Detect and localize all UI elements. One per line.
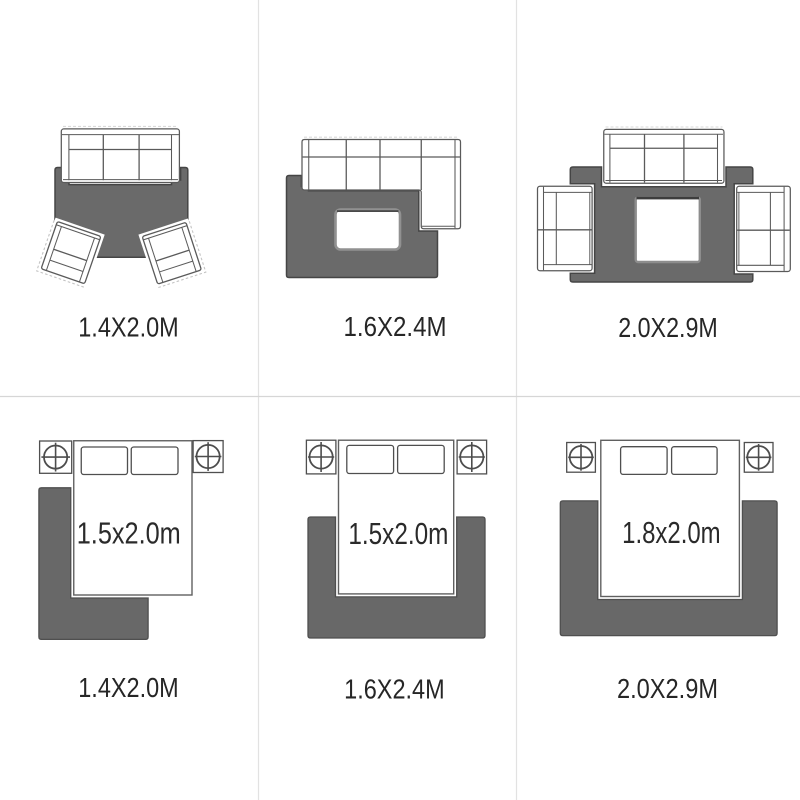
svg-text:1.5x2.0m: 1.5x2.0m [348, 517, 448, 551]
svg-text:2.0X2.9M: 2.0X2.9M [617, 673, 718, 704]
svg-text:1.5x2.0m: 1.5x2.0m [77, 517, 181, 551]
svg-text:1.4X2.0M: 1.4X2.0M [78, 672, 179, 703]
svg-text:1.8x2.0m: 1.8x2.0m [622, 516, 721, 550]
svg-text:1.6X2.4M: 1.6X2.4M [344, 674, 445, 705]
svg-text:1.6X2.4M: 1.6X2.4M [344, 311, 447, 342]
svg-text:2.0X2.9M: 2.0X2.9M [618, 312, 718, 343]
svg-text:1.4X2.0M: 1.4X2.0M [78, 312, 179, 343]
